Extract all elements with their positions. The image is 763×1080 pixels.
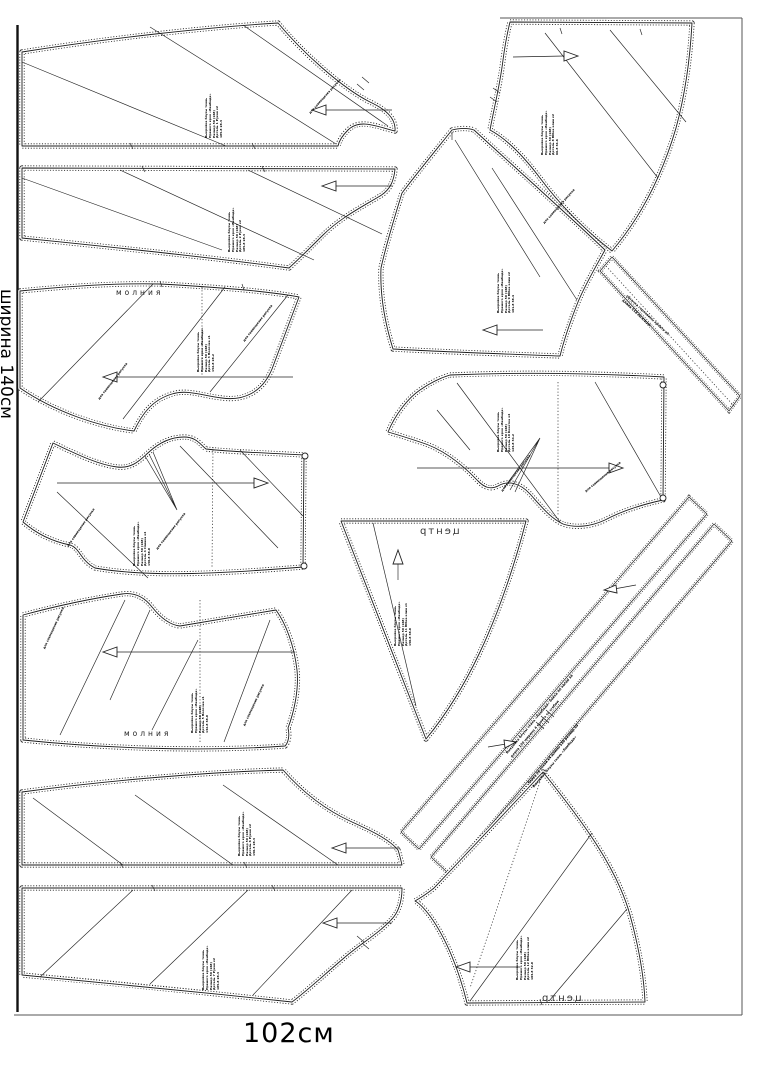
piece-info-microtext: Выкройка блузы ткань Прямого кроя «Ламба… (205, 66, 224, 138)
drill-hole-mark (660, 382, 666, 388)
piece-info-microtext: Выкройка блузы ткань Прямого кроя «Ламба… (202, 906, 221, 990)
drill-hole-mark (302, 453, 308, 459)
drill-hole-mark (660, 495, 666, 501)
center-label-mirrored: центр (418, 526, 460, 537)
zipper-label: молния (116, 288, 163, 297)
piece-info-microtext: Выкройка блузы ткань Прямого кроя «Ламба… (191, 653, 210, 733)
pattern-piece-3-bodice (20, 281, 299, 431)
pattern-piece-6-sleeve (22, 770, 402, 868)
piece-info-microtext: Выкройка блузы ткань Прямого кроя «Ламба… (516, 900, 535, 980)
piece-info-microtext: Выкройка блузы ткань Прямого кроя «Ламба… (497, 239, 516, 313)
fabric-width-label: ширина 140см (0, 289, 16, 429)
piece-info-microtext: Выкройка блузы ткань Прямого кроя «Ламба… (497, 380, 516, 452)
pattern-piece-11-yoke (388, 373, 666, 527)
piece-info-microtext: Выкройка блузы ткань Прямого кроя «Ламба… (228, 182, 247, 252)
pattern-piece-2-sleeve (22, 166, 395, 268)
piece-info-microtext: Выкройка блузы ткань Прямого кроя «Ламба… (197, 298, 216, 372)
pattern-piece-5-bodice (23, 594, 297, 749)
center-label-mirrored: центр (540, 993, 582, 1004)
layout-length-label: 102см (243, 1018, 335, 1049)
pattern-layout-drawing (0, 0, 763, 1080)
pattern-piece-12-gore (341, 521, 526, 739)
zipper-label: молния (124, 729, 171, 738)
pattern-piece-4-bodice (23, 437, 308, 578)
piece-info-microtext: Выкройка блузы ткань Прямого кроя «Ламба… (541, 77, 560, 155)
piece-info-microtext: Выкройка блузы ткань Прямого кроя «Ламба… (238, 780, 257, 856)
sewing-pattern-cutting-layout: ширина 140см 102см молния молния центр ц… (0, 0, 763, 1080)
drill-hole-mark (301, 563, 307, 569)
piece-info-microtext: Выкройка блузы ткань Прямого кроя «Ламба… (133, 496, 152, 566)
piece-info-microtext: Выкройка блузы ткань Прямого кроя «Ламба… (394, 582, 413, 646)
